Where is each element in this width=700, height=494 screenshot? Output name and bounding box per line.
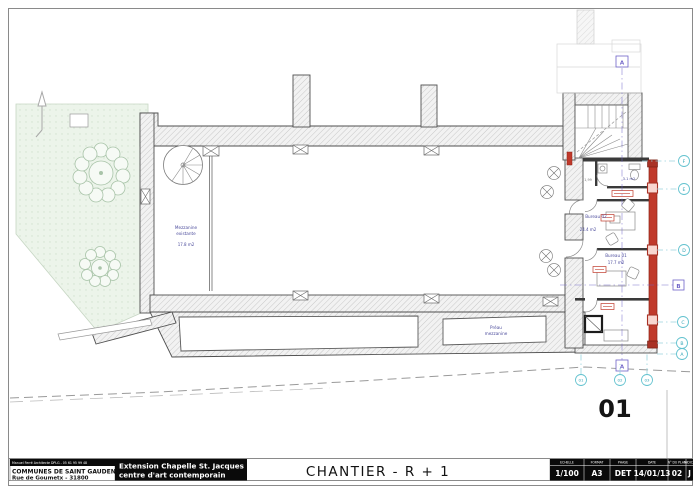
table-value-format: A3	[591, 469, 602, 478]
sink-icon	[598, 164, 607, 173]
room-label-preau-2: mezzanine	[485, 331, 508, 336]
table-header-phase: PHASE	[618, 461, 628, 465]
section-marker-a-top: A	[616, 56, 628, 67]
section-label: B	[676, 284, 680, 290]
table-header-date: DATE	[648, 461, 656, 465]
dimension-text: 1,99	[584, 178, 592, 182]
floor-plan-svg: A A B F E D C B A 01 02 03 Mezzanine	[0, 0, 700, 494]
table-value-date: 14/01/13	[634, 469, 671, 478]
architect-cell: Manuel Ferré Architecte DPLG - 05 61 95 …	[10, 459, 120, 482]
garden-area	[16, 92, 148, 332]
room-area-sanitaires: 3.1 m2	[623, 177, 636, 181]
room-area-bureau01: 17.7 m2	[608, 260, 625, 265]
drawing-title-cell: CHANTIER - R + 1	[306, 459, 550, 481]
room-tag	[612, 191, 633, 197]
room-label-mezzanine-2: existante	[176, 231, 196, 236]
room-tag	[601, 304, 614, 310]
spiral-stair-icon	[164, 146, 203, 185]
table-header-echelle: ECHELLE	[560, 461, 574, 465]
table-value-phase: DET	[615, 469, 632, 478]
grid-letter: F	[683, 159, 686, 165]
site-lines	[10, 367, 695, 458]
grid-letter: E	[683, 187, 686, 193]
project-cell: Extension Chapelle St. Jacques centre d'…	[115, 459, 247, 481]
section-marker-a-bottom: A	[616, 360, 628, 371]
table-header-format: FORMAT	[591, 461, 604, 465]
chair	[605, 232, 619, 246]
info-table: ECHELLE FORMAT PHASE DATE N° DU PLAN IND…	[550, 459, 695, 481]
client-name: COMMUNES DE SAINT GAUDENS	[12, 469, 120, 476]
table-header-indice: INDICE	[684, 461, 695, 465]
section-label: A	[620, 61, 625, 67]
table-value-echelle: 1/100	[555, 469, 579, 478]
project-name-1: Extension Chapelle St. Jacques	[119, 462, 244, 471]
grid-number: 03	[645, 378, 650, 383]
title-block: Manuel Ferré Architecte DPLG - 05 61 95 …	[9, 459, 695, 482]
fixture	[604, 330, 628, 341]
elevator	[585, 316, 602, 332]
grid-letter: B	[680, 341, 683, 347]
room-tag	[593, 267, 606, 273]
new-wall-stub	[567, 152, 572, 165]
grid-number: 01	[579, 378, 584, 383]
grid-number: 02	[618, 378, 623, 383]
table-value-indice: J	[687, 469, 691, 478]
beam-symbols	[141, 145, 558, 306]
table-value-numplan: 02	[672, 469, 682, 478]
section-label: A	[620, 365, 625, 371]
architect-line: Manuel Ferré Architecte DPLG - 05 61 95 …	[12, 461, 87, 465]
client-address: Rue de Goumetx - 31800	[12, 476, 89, 482]
stair-tower	[567, 105, 628, 165]
room-label-mezzanine-1: Mezzanine	[175, 225, 198, 230]
room-label-preau-1: Préau	[490, 325, 502, 330]
chair	[626, 266, 639, 279]
existing-walls	[58, 10, 657, 357]
section-marker-b: B	[673, 280, 684, 290]
drawing-sheet: A A B F E D C B A 01 02 03 Mezzanine	[0, 0, 700, 494]
garden-pier	[70, 114, 88, 127]
new-red-wall	[648, 160, 658, 348]
room-label-bureau01: Bureau 01	[605, 253, 627, 258]
grid-letter: D	[682, 248, 686, 254]
room-area-bureau02: 24.4 m2	[580, 227, 597, 232]
mezzanine-strip	[164, 146, 213, 292]
plan-number-large: 01	[598, 395, 631, 423]
room-area-mezzanine: 17.8 m2	[178, 242, 195, 247]
room-label-bureau02: Bureau 02	[585, 214, 607, 219]
drawing-title: CHANTIER - R + 1	[306, 464, 450, 480]
column-symbols	[540, 167, 561, 277]
project-name-2: centre d'art contemporain	[119, 471, 225, 480]
grid-letter: C	[681, 320, 684, 326]
